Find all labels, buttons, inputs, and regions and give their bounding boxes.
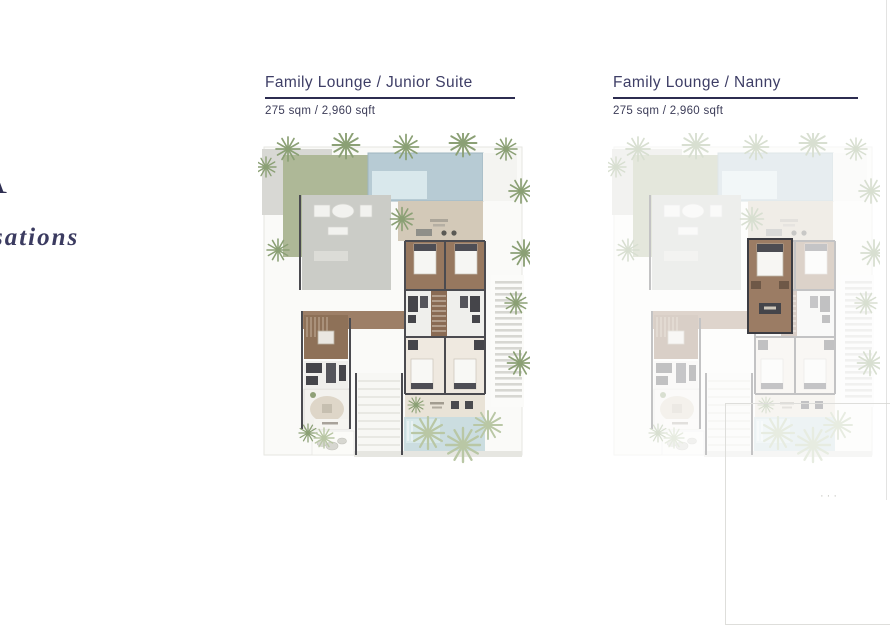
plan-title: Family Lounge / Junior Suite bbox=[265, 74, 525, 92]
title-underline bbox=[613, 97, 858, 99]
plan-area: 275 sqm / 2,960 sqft bbox=[265, 105, 525, 117]
faint-frame bbox=[725, 403, 890, 625]
plan-title: Family Lounge / Nanny bbox=[613, 74, 873, 92]
bathroom-left-wing bbox=[304, 361, 348, 388]
floor-plan-junior-suite bbox=[258, 133, 530, 467]
patio bbox=[302, 195, 391, 290]
stair-room bbox=[304, 315, 348, 359]
plan-area: 275 sqm / 2,960 sqft bbox=[613, 105, 873, 117]
right-edge-line bbox=[886, 0, 887, 500]
bedroom-upper-left bbox=[405, 241, 445, 290]
pergola bbox=[491, 275, 524, 407]
brochure-page: { "brand": { "partial_letter": "A", "par… bbox=[0, 0, 890, 500]
garden-seating bbox=[312, 419, 354, 455]
bedroom-lower-left bbox=[405, 337, 445, 394]
ground-strip bbox=[354, 451, 522, 457]
title-underline bbox=[265, 97, 515, 99]
central-staircase bbox=[431, 291, 447, 337]
terrace bbox=[398, 201, 483, 241]
brand-partial-letter: A bbox=[0, 156, 8, 203]
bedroom-lower-right bbox=[445, 337, 485, 394]
garden-steps bbox=[356, 373, 402, 457]
nanny-room-highlight bbox=[748, 239, 792, 333]
bedroom-upper-right bbox=[445, 241, 485, 290]
plan-header-junior-suite: Family Lounge / Junior Suite 275 sqm / 2… bbox=[265, 74, 525, 117]
main-pool bbox=[368, 153, 517, 201]
plan-header-nanny: Family Lounge / Nanny 275 sqm / 2,960 sq… bbox=[613, 74, 873, 117]
brand-partial-word: sations bbox=[0, 224, 79, 252]
footer-marks: ··· bbox=[820, 490, 840, 502]
